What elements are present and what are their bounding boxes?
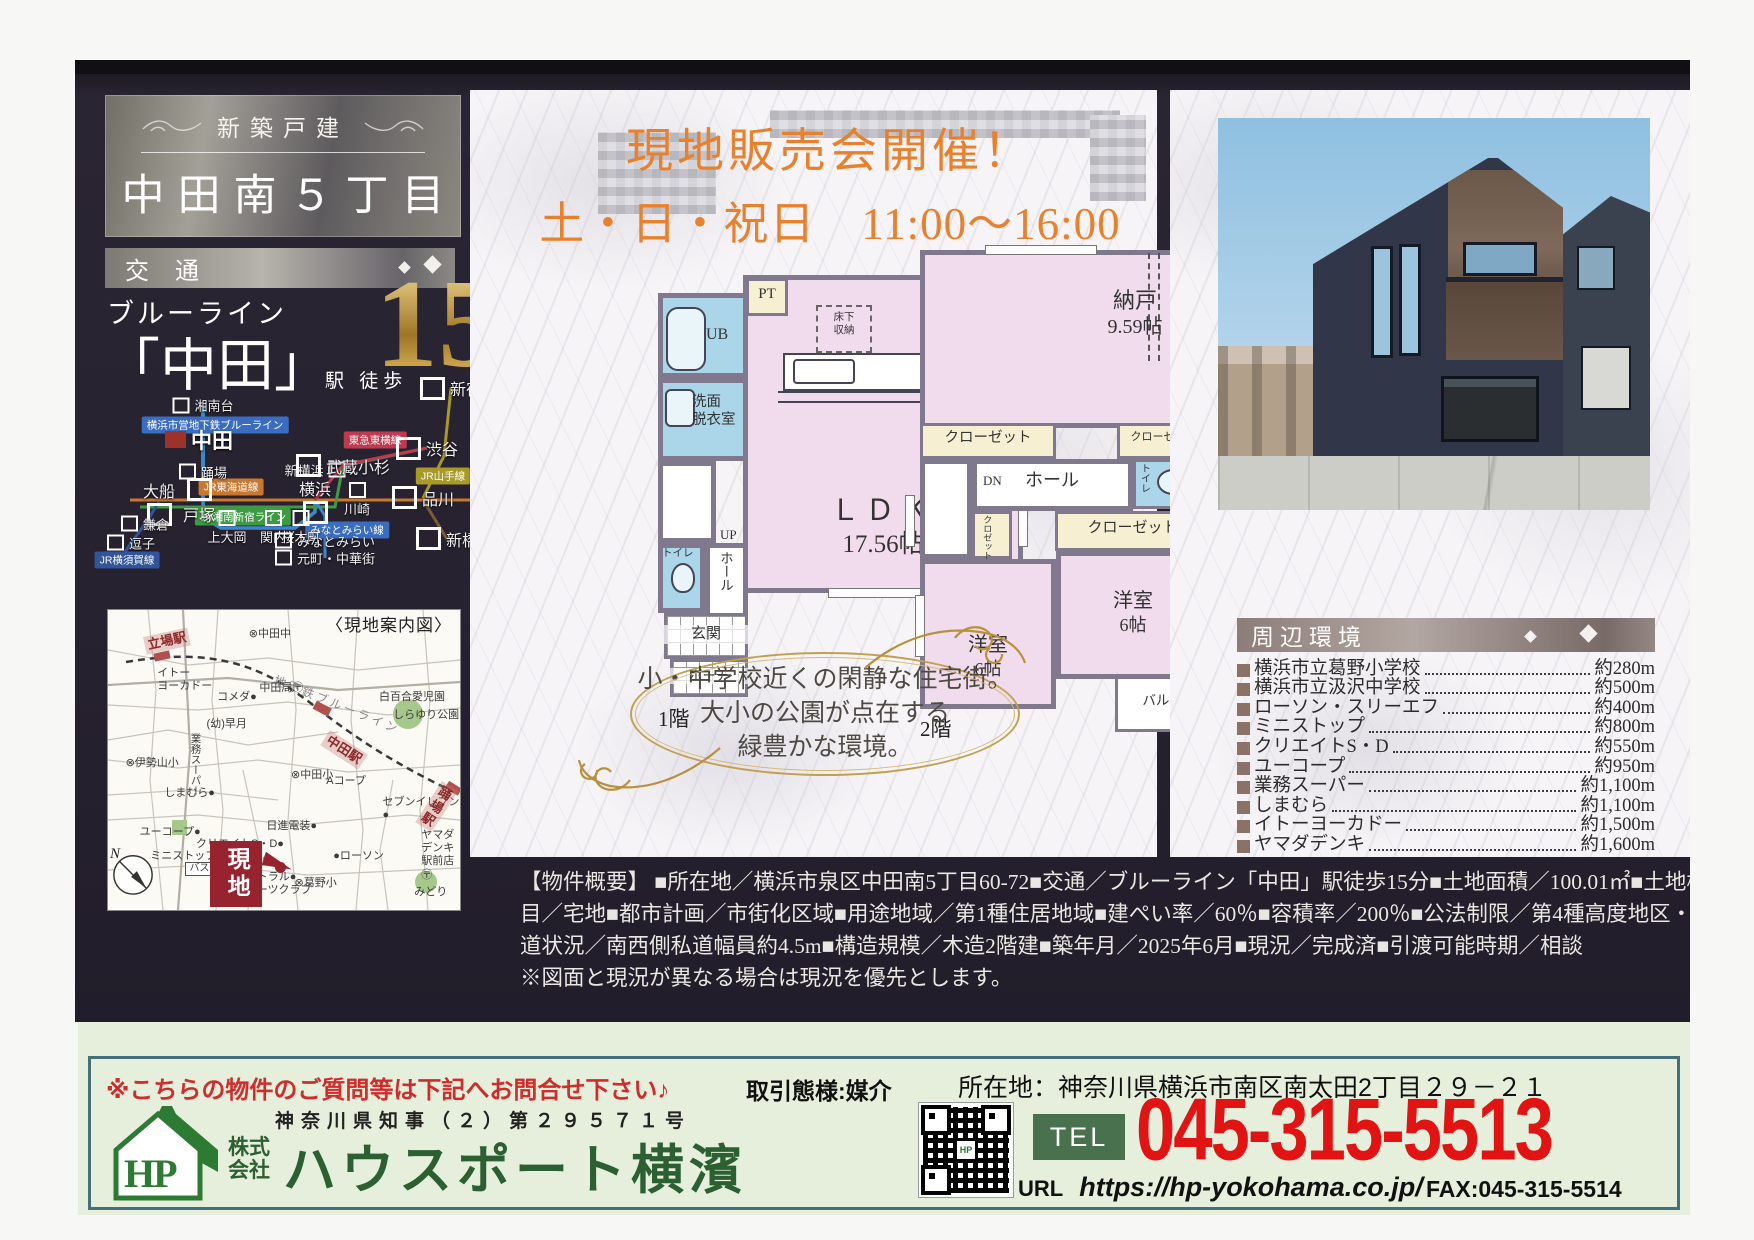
map-place-label: ●ローソン [333, 850, 384, 863]
hall-label-1f: ホール [716, 551, 733, 592]
house-slit-window [1371, 246, 1393, 358]
dotted-leader [1369, 790, 1577, 792]
rail-station: 鎌倉 [121, 514, 169, 533]
qr-finder-icon [921, 1165, 951, 1195]
rail-station: 渋谷 [396, 436, 458, 460]
toilet-bowl [671, 563, 695, 593]
overview-line: 【物件概要】 ■所在地／横浜市泉区中田南5丁目60-72■交通／ブルーライン「中… [520, 866, 1690, 898]
rail-station: 湘南台 [172, 396, 233, 415]
map-place-label: 白百合愛児園 [379, 691, 445, 704]
tel-label: TEL [1033, 1114, 1125, 1160]
center-panel: 現地販売会開催！ 土・日・祝日 11:00〜16:00 PT 床下 収納 ＬＤＫ… [470, 90, 1157, 857]
map-place-label: コメダ● [217, 691, 257, 704]
rail-station: 逗子 [107, 533, 155, 552]
house-upper-window [1463, 242, 1537, 276]
dotted-leader [1406, 829, 1576, 831]
compass-icon [110, 848, 156, 898]
dotted-leader [1369, 731, 1590, 733]
station-label: 湘南台 [194, 396, 233, 415]
stairs-2f [920, 459, 972, 559]
map-place-label: ユーコープ● [140, 826, 201, 839]
kitchen-sink [793, 359, 855, 384]
event-schedule: 土・日・祝日 11:00〜16:00 [520, 187, 1140, 252]
square-bullet-icon [1237, 762, 1250, 775]
url-value: https://hp-yokohama.co.jp/ [1079, 1172, 1423, 1203]
square-bullet-icon [1237, 683, 1250, 696]
station-label: 横浜 [299, 476, 331, 500]
event-title: 現地販売会開催！ [520, 112, 1140, 181]
underfloor-storage-label: 床下 収納 [816, 305, 872, 353]
station-box-icon [348, 482, 365, 498]
station-box-icon [296, 454, 321, 477]
station-label: みなとみらい [297, 531, 375, 550]
station-box-icon [292, 510, 309, 526]
tel-number: 045-315-5513 [1136, 1080, 1552, 1180]
qr-finder-icon [981, 1105, 1011, 1135]
square-bullet-icon [1237, 801, 1250, 814]
dotted-leader [1369, 849, 1576, 851]
qr-code: HP [918, 1102, 1014, 1198]
entrance-label: 玄関 [664, 625, 748, 644]
toilet-label-2f: トイレ [1137, 463, 1150, 493]
square-bullet-icon [1237, 840, 1250, 853]
environment-header: 周辺環境 [1237, 618, 1655, 652]
window [905, 495, 915, 547]
house-slit-window [1399, 244, 1421, 356]
overview-line: 目／宅地■都市計画／市街化区域■用途地域／第1種住居地域■建ぺい率／60％■容積… [520, 898, 1690, 930]
station-box-icon [392, 486, 417, 509]
bath-label: UB [706, 325, 728, 345]
house-photo [1218, 118, 1650, 510]
neighbor-window [1577, 246, 1615, 290]
url-row: URL https://hp-yokohama.co.jp/ [1018, 1172, 1423, 1203]
catch-line-3: 緑豊かな環境。 [737, 731, 912, 765]
map-compass: N [110, 848, 164, 906]
flyer-scan: 新築戸建 中田南５丁目 交通 ブルーライン 「中田」 駅 徒歩 15 分 [75, 60, 1690, 1022]
overview-line: ※図面と現況が異なる場合は現況を優先とします。 [520, 962, 1690, 994]
station-box-icon [275, 533, 292, 549]
rail-station: 品川 [392, 486, 454, 510]
flyer-top-band [75, 60, 1690, 74]
station-box-icon [172, 397, 189, 413]
station-box-icon [275, 550, 292, 566]
site-marker: 現地 [210, 841, 262, 907]
dotted-leader [1443, 712, 1590, 714]
station-label: 品川 [422, 486, 454, 510]
dotted-leader [1425, 692, 1591, 694]
toilet-label-1f: トイレ [662, 547, 694, 560]
dotted-leader [1349, 771, 1590, 773]
neighbor-window [1581, 346, 1631, 410]
map-place-label: イトー ヨーカドー [157, 667, 212, 693]
map-place-label: 地下鉄ブルーライン [272, 673, 403, 737]
wash-basin [665, 389, 695, 427]
station-label: 武蔵小杉 [326, 454, 390, 478]
dotted-leader [1425, 673, 1591, 675]
stairs-1f [658, 461, 716, 543]
station-box-icon [107, 535, 124, 551]
square-bullet-icon [1237, 722, 1250, 735]
map-place-label: 日進電装● [266, 820, 317, 833]
pantry-label: PT [746, 285, 788, 304]
rail-station: 川崎 [344, 482, 370, 518]
square-bullet-icon [1237, 742, 1250, 755]
closet-left-label: クローゼット [920, 429, 1056, 447]
new-build-badge: 新築戸建 [105, 109, 461, 143]
hall-label-2f: ホール [1025, 469, 1079, 492]
station-box-icon [264, 510, 281, 526]
map-place-label: Aコープ [326, 775, 366, 788]
map-place-label: 中田駅 [320, 730, 367, 769]
map-place-label: 立場駅 [143, 628, 191, 655]
badge-label: 新築戸建 [217, 109, 349, 143]
closet-small-label: クロゼット [981, 515, 992, 560]
stairs-up-label: UP [720, 527, 737, 543]
map-place-label: (幼)早月 [207, 718, 247, 731]
map-place-label: しらゆり公園 [393, 709, 459, 722]
rail-station: 元町・中華街 [275, 548, 375, 567]
station-box-icon [396, 437, 421, 460]
station-label: 逗子 [129, 533, 155, 552]
rail-station: みなとみらい [275, 531, 375, 550]
catch-line-2: 大小の公園が点在する [700, 697, 950, 731]
square-bullet-icon [1237, 664, 1250, 677]
station-box-icon [186, 478, 211, 501]
bathtub [666, 307, 706, 371]
property-overview: 【物件概要】 ■所在地／横浜市泉区中田南5丁目60-72■交通／ブルーライン「中… [520, 866, 1690, 994]
washroom-label: 洗面 脱衣室 [692, 393, 736, 429]
environment-item-distance: 約1,600m [1580, 830, 1655, 856]
station-box-icon [165, 431, 186, 448]
house-lower-window [1441, 376, 1540, 441]
rail-station: 武蔵小杉 [296, 454, 390, 478]
main-house [1313, 158, 1563, 470]
map-place-label: しまむら● [164, 787, 215, 800]
logo-text: HP [124, 1150, 176, 1197]
square-bullet-icon [1237, 781, 1250, 794]
site-marker-label: 現地 [219, 847, 253, 901]
transport-label: 交通 [105, 251, 225, 286]
rail-station: 上大岡 [207, 510, 246, 546]
company-name: ハウスポート横濱 [283, 1128, 747, 1204]
driveway [1218, 456, 1650, 510]
qr-center-logo: HP [957, 1141, 975, 1159]
company-logo: HP [108, 1102, 220, 1204]
flourish-icon [141, 117, 203, 135]
station-box-icon [121, 516, 138, 532]
gold-flourish-icon [575, 738, 725, 800]
station-label: 鎌倉 [143, 514, 169, 533]
station-label: 上大岡 [207, 527, 246, 546]
right-panel: 周辺環境 横浜市立葛野小学校 約280m 横浜市立汲沢中学校 約500m ローソ… [1170, 90, 1690, 857]
station-label: 元町・中華街 [297, 548, 375, 567]
station-label: 渋谷 [426, 436, 458, 460]
neighbor-building-right [1563, 196, 1650, 470]
rail-stations: 湘南台 中田 踊場 新横浜 武蔵小杉 渋谷 [95, 358, 495, 573]
overview-line: 道状況／南西側私道幅員約4.5m■構造規模／木造2階建■築年月／2025年6月■… [520, 930, 1690, 962]
stairs-dn-label: DN [983, 473, 1002, 489]
station-box-icon [218, 510, 235, 526]
area-map: 〈現地案内図〉 立場駅イトー ヨーカドーコメダ●⊗中田中中田局〶地下鉄ブルーライ… [108, 610, 460, 910]
dotted-leader [1393, 751, 1591, 753]
footer: ※こちらの物件のご質問等は下記へお問合せ下さい♪ HP 神奈川県知事（２）第２９… [78, 1022, 1690, 1215]
sparkle-icon [1579, 624, 1597, 642]
environment-list: 横浜市立葛野小学校 約280m 横浜市立汲沢中学校 約500m ローソン・スリー… [1237, 660, 1655, 856]
contact-message: ※こちらの物件のご質問等は下記へお問合せ下さい♪ [106, 1070, 669, 1105]
fax-number: FAX:045-315-5514 [1426, 1176, 1622, 1203]
page-title: 中田南５丁目 [105, 161, 461, 223]
map-place-label: ⊗伊勢山小 [126, 757, 179, 770]
rail-map: 横浜市営地下鉄ブルーライン東急東横線JR東海道線JR湘南新宿ラインJR山手線みな… [95, 358, 495, 573]
station-label: 大船 [143, 478, 175, 502]
station-label: 中田 [191, 425, 233, 455]
environment-item: ヤマダデンキ 約1,600m [1237, 836, 1655, 856]
dealing-type: 取引態様:媒介 [746, 1072, 892, 1106]
map-place-label: ⊗葛野小 [295, 877, 337, 890]
station-label: 川崎 [344, 499, 370, 518]
environment-item-name: ヤマダデンキ [1254, 830, 1365, 856]
sparkle-icon [1524, 630, 1537, 643]
gold-flourish-icon [860, 618, 1030, 678]
station-box-icon [420, 377, 445, 400]
divider [141, 152, 425, 153]
rail-station: 中田 [165, 425, 233, 455]
flourish-icon [363, 117, 425, 135]
qr-finder-icon [921, 1105, 951, 1135]
open-house-banner: 現地販売会開催！ 土・日・祝日 11:00〜16:00 [520, 112, 1140, 252]
house-balcony [1446, 277, 1564, 360]
rail-station: 新橋 [416, 527, 478, 551]
company-prefix: 株式 会社 [228, 1136, 270, 1182]
company-prefix-2: 会社 [228, 1159, 270, 1182]
station-box-icon [416, 527, 441, 550]
map-place-label: ⊗中田中 [249, 628, 291, 641]
environment-title: 周辺環境 [1237, 618, 1367, 652]
company-prefix-1: 株式 [228, 1136, 270, 1159]
url-label: URL [1018, 1176, 1063, 1202]
square-bullet-icon [1237, 703, 1250, 716]
map-place-label: みどり [414, 886, 447, 899]
square-bullet-icon [1237, 820, 1250, 833]
title-plate: 新築戸建 中田南５丁目 [105, 95, 461, 237]
map-place-label: ヤマダデンキ 駅前店〶 [421, 829, 460, 882]
